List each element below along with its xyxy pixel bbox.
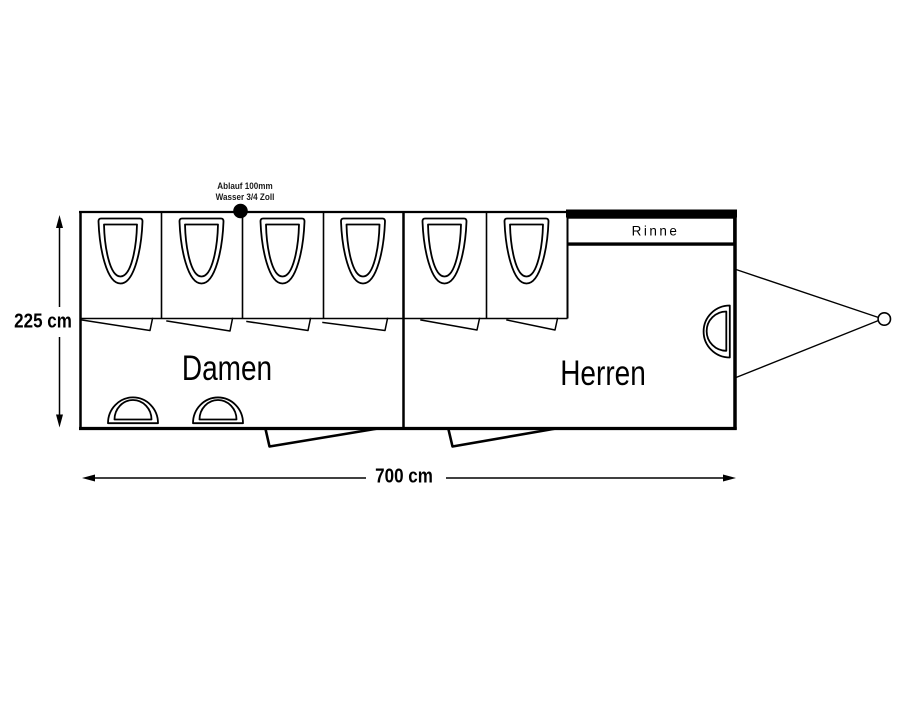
toilet-seat <box>423 219 467 284</box>
sink-damen <box>108 397 158 423</box>
sink-damen <box>193 397 243 423</box>
entrance-door-herren <box>449 429 557 447</box>
toilet-seat <box>341 219 385 284</box>
stall-doors <box>82 319 558 332</box>
floorplan-canvas: Ablauf 100mm Wasser 3/4 Zoll Rinne Damen… <box>0 0 900 710</box>
supply-connection-dot <box>233 204 248 219</box>
hitch-eye <box>878 313 890 325</box>
floorplan-drawing <box>0 0 900 710</box>
rinne-trough-bar <box>566 210 737 218</box>
toilet-seat <box>505 219 549 284</box>
supply-annotation-line1: Ablauf 100mm <box>216 181 275 192</box>
height-dimension-label: 225 cm <box>14 310 72 333</box>
supply-annotation: Ablauf 100mm Wasser 3/4 Zoll <box>216 181 275 203</box>
room-label-herren: Herren <box>560 354 646 394</box>
sink-herren <box>704 306 730 358</box>
room-label-damen: Damen <box>181 349 271 389</box>
toilet-seat <box>261 219 305 284</box>
trailer-drawbar <box>736 270 879 378</box>
width-dimension-label: 700 cm <box>375 466 433 489</box>
entrance-door-damen <box>266 429 379 447</box>
supply-annotation-line2: Wasser 3/4 Zoll <box>216 192 275 203</box>
toilet-seat <box>180 219 224 284</box>
rinne-label: Rinne <box>632 223 680 238</box>
toilet-seat <box>99 219 143 284</box>
